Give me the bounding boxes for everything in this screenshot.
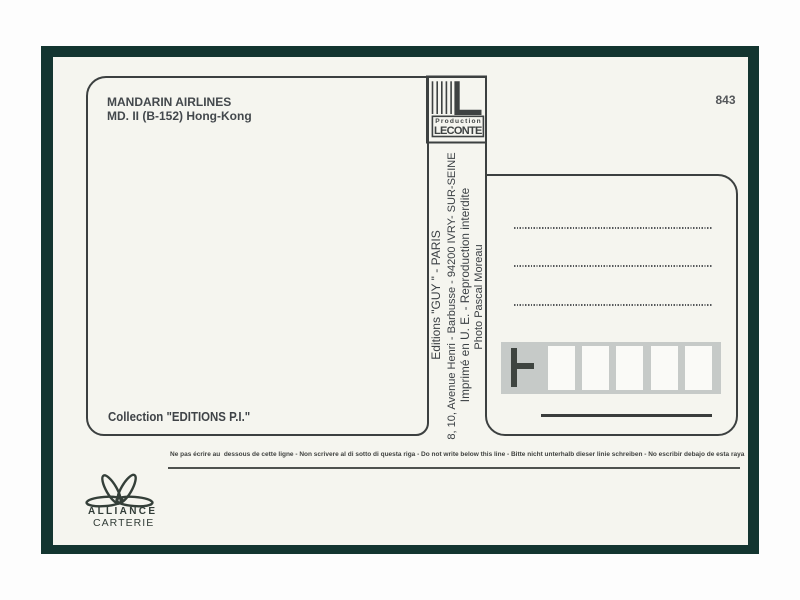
svg-text:LECONTE: LECONTE: [434, 125, 482, 137]
svg-text:Production: Production: [435, 118, 480, 125]
